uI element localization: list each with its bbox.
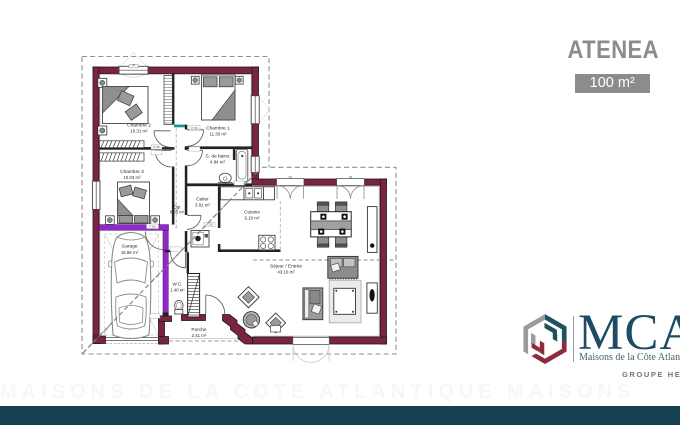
svg-text:W.C.: W.C. xyxy=(173,282,183,287)
svg-text:6.05 m²: 6.05 m² xyxy=(170,210,185,215)
svg-text:P.700: P.700 xyxy=(153,145,160,149)
svg-text:VR: VR xyxy=(132,63,136,67)
svg-text:2.41 m²: 2.41 m² xyxy=(192,333,207,338)
svg-text:P.700: P.700 xyxy=(206,223,213,227)
svg-text:10.03 m²: 10.03 m² xyxy=(123,175,141,180)
svg-text:Garage: Garage xyxy=(122,244,138,250)
svg-text:43.10 m²: 43.10 m² xyxy=(277,270,295,275)
svg-text:F.100: F.100 xyxy=(149,224,156,228)
svg-text:VR: VR xyxy=(288,175,292,179)
svg-text:P.700: P.700 xyxy=(191,126,198,130)
svg-text:VR: VR xyxy=(349,175,353,179)
svg-text:1.40 m²: 1.40 m² xyxy=(170,287,185,292)
svg-text:10.31 m²: 10.31 m² xyxy=(130,129,148,134)
svg-text:15.96 m²: 15.96 m² xyxy=(121,250,139,255)
svg-text:3.91 m²: 3.91 m² xyxy=(195,203,210,208)
svg-text:4.84 m²: 4.84 m² xyxy=(210,160,225,165)
svg-text:6.10 m²: 6.10 m² xyxy=(245,216,260,221)
svg-text:11.30 m²: 11.30 m² xyxy=(209,132,227,137)
